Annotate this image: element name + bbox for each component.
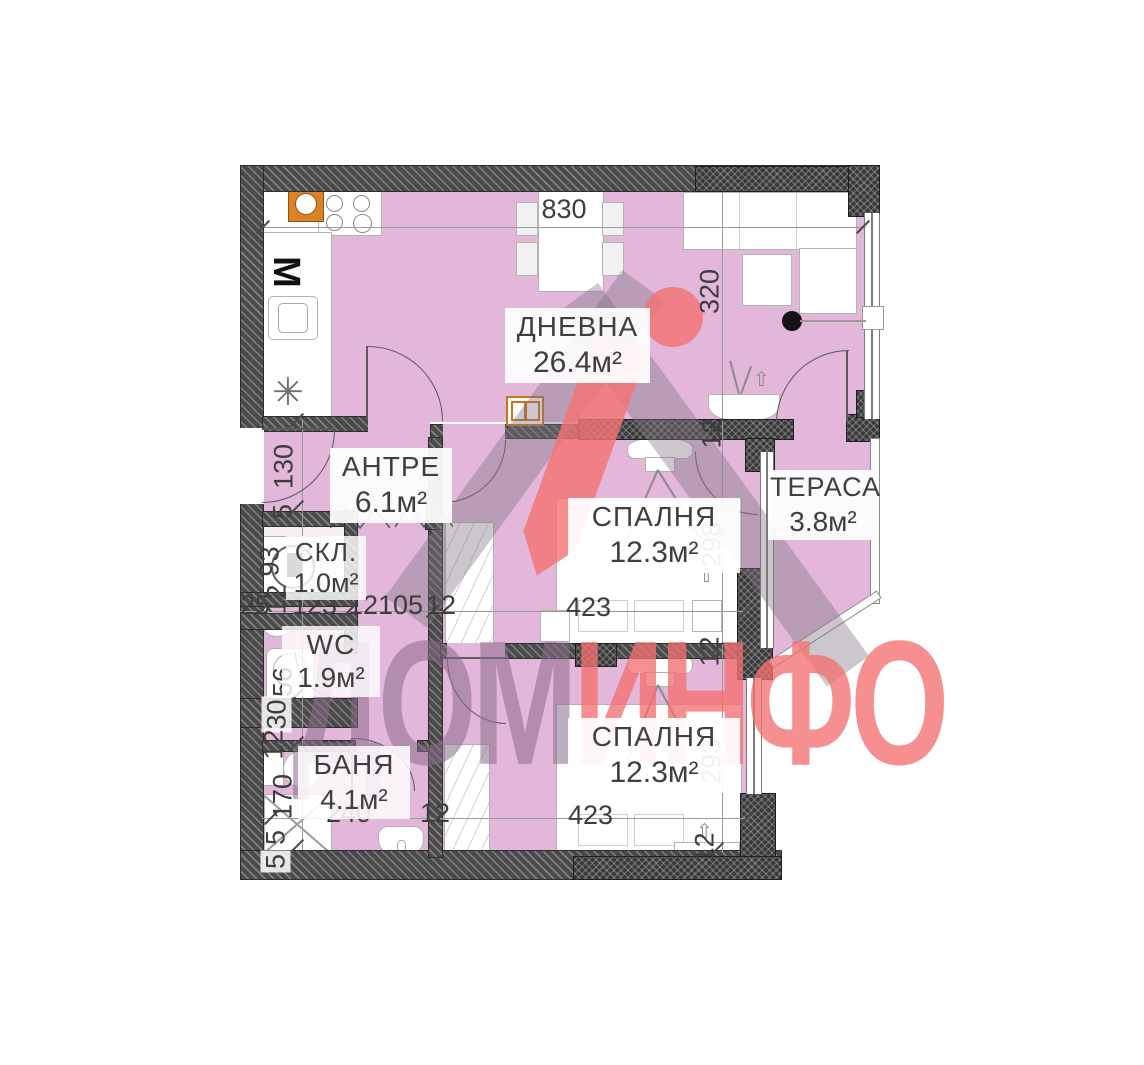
dim-5-text: 5	[261, 851, 291, 872]
room-area: 6.1м²	[335, 486, 447, 520]
top-wall-right-segment	[695, 166, 852, 192]
hall-living-door-leaf	[366, 346, 368, 420]
room-label-wc: WC 1.9м²	[282, 626, 380, 697]
room-name: АНТРЕ	[335, 451, 447, 483]
dim-12-mid-wall: 12	[697, 622, 724, 682]
coffee-table	[742, 254, 792, 306]
room-name: СКЛ.	[288, 537, 364, 568]
kitchen-sink-icon	[268, 296, 318, 340]
room-area: 1.9м²	[287, 662, 375, 694]
dining-chair	[602, 202, 624, 236]
column-dot	[782, 311, 802, 331]
column-reference-line	[800, 320, 866, 322]
dim-320: 320	[697, 262, 724, 322]
bedroom1-door-opening	[443, 424, 505, 439]
entrance-opening	[238, 428, 264, 504]
dim-423-bedroom2: 423	[568, 802, 613, 829]
dim-12-bed2-wall: 12	[692, 818, 719, 878]
room-label-bedroom1: СПАЛНЯ 12.3м²	[568, 498, 740, 573]
room-label-storage: СКЛ. 1.0м²	[286, 536, 366, 600]
room-label-terrace: ТЕРАСА 3.8м²	[768, 470, 878, 540]
arrow-icon: ⇧	[753, 370, 770, 390]
room-label-bedroom2: СПАЛНЯ 12.3м²	[568, 718, 740, 793]
stove-icon	[318, 190, 382, 236]
dim-830: 830	[534, 196, 594, 223]
room-area: 1.0м²	[288, 568, 364, 599]
dim-5-bottom2: 5	[263, 832, 290, 892]
east-bottom-pillar	[740, 793, 776, 857]
dim-12-bath-wall: 12	[261, 715, 288, 775]
entrance-door-leaf	[262, 428, 334, 430]
room-area: 12.3м²	[573, 536, 735, 570]
room-name: СПАЛНЯ	[573, 721, 735, 753]
terrace-door-leaf	[846, 350, 848, 422]
living-window-sill-break	[862, 306, 884, 330]
dim-25: 25	[240, 592, 270, 619]
sofa-chaise	[799, 248, 857, 314]
washing-machine-label: М	[267, 249, 307, 295]
dim-line-top	[262, 227, 866, 228]
sofa-back	[683, 192, 857, 250]
room-name: ДНЕВНА	[510, 311, 645, 343]
room-area: 26.4м²	[510, 346, 645, 380]
room-name: ТЕРАСА	[770, 472, 876, 503]
room-name: БАНЯ	[303, 749, 405, 781]
fridge-symbol: ✳	[272, 374, 304, 412]
dim-12-row2: 12	[426, 592, 456, 619]
room-area: 12.3м²	[573, 756, 735, 790]
top-right-corner-pillar	[848, 165, 880, 217]
room-label-hall: АНТРЕ 6.1м²	[330, 448, 452, 523]
dim-12-wall-a: 12	[699, 404, 726, 464]
room-name: СПАЛНЯ	[573, 501, 735, 533]
room-name: WC	[287, 629, 375, 661]
room-label-living: ДНЕВНА 26.4м²	[505, 308, 650, 383]
room-label-bath: БАНЯ 4.1м²	[298, 746, 410, 819]
room-area: 3.8м²	[770, 506, 876, 538]
dim-423-bedroom1: 423	[566, 594, 611, 621]
room-area: 4.1м²	[303, 784, 405, 816]
floor-plan: М ✳ ⇧ ⇧ ⇧	[0, 0, 1144, 1065]
dining-chair	[516, 242, 538, 276]
dim-12-corridor: 12	[420, 800, 450, 827]
dim-105: 105	[378, 592, 423, 619]
bottom-wall-right-segment	[573, 856, 782, 880]
